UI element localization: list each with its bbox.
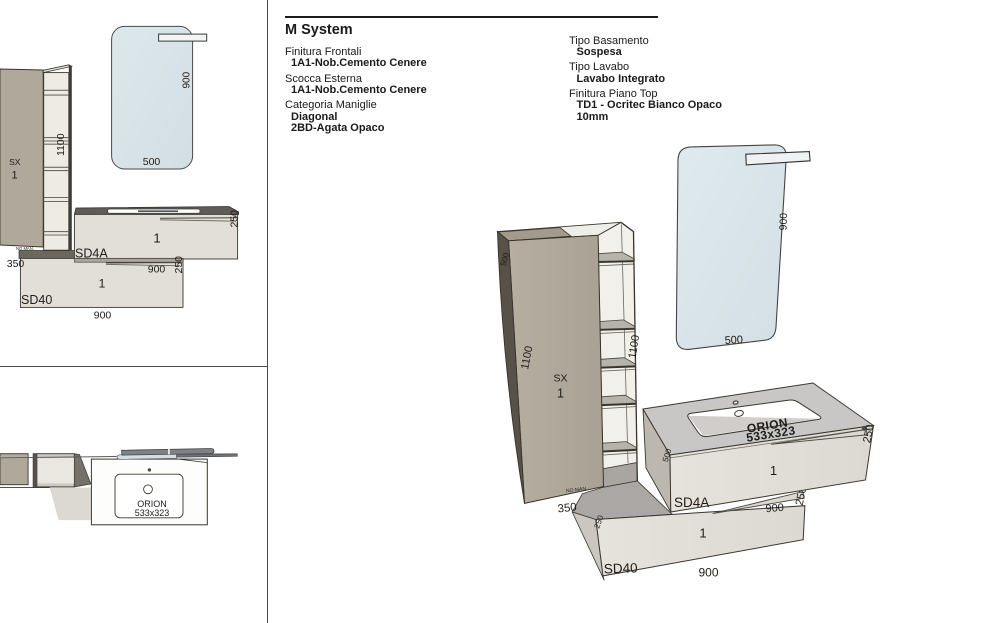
svg-text:350: 350 [7,258,25,270]
svg-text:900: 900 [94,310,112,322]
svg-text:1100: 1100 [627,334,643,359]
svg-text:900: 900 [148,263,166,275]
svg-text:500: 500 [143,156,161,168]
svg-text:500: 500 [724,334,743,347]
svg-text:1: 1 [557,387,564,401]
svg-text:1100: 1100 [55,133,67,156]
svg-text:1: 1 [99,277,106,291]
svg-text:900: 900 [182,71,193,88]
svg-text:900: 900 [778,213,791,231]
svg-text:250: 250 [861,424,877,444]
svg-text:900: 900 [698,566,718,580]
svg-text:533x323: 533x323 [135,508,170,518]
svg-text:SD40: SD40 [604,560,638,576]
svg-text:1: 1 [153,231,160,246]
svg-text:900: 900 [765,502,784,516]
svg-text:250: 250 [229,210,241,228]
svg-text:SX: SX [9,157,21,167]
svg-text:SD4A: SD4A [674,495,709,510]
svg-text:350: 350 [557,502,577,516]
svg-text:250: 250 [173,256,185,274]
svg-text:1: 1 [770,463,777,478]
svg-text:SX: SX [553,373,567,385]
svg-text:1: 1 [699,526,706,541]
svg-text:SD40: SD40 [21,293,52,307]
svg-text:1: 1 [11,170,17,182]
